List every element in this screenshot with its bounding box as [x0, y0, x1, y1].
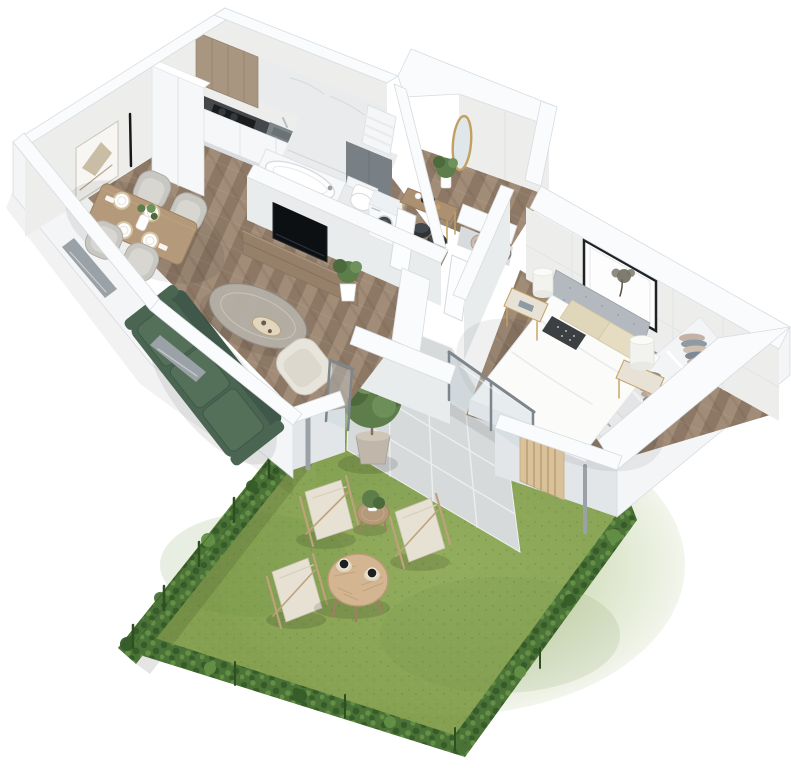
lamp-left: [533, 268, 553, 298]
floor-plan-render: [0, 0, 791, 768]
strip-light-1: [130, 114, 131, 166]
lamp-right: [630, 336, 654, 371]
floor-plan-svg: [0, 0, 791, 768]
